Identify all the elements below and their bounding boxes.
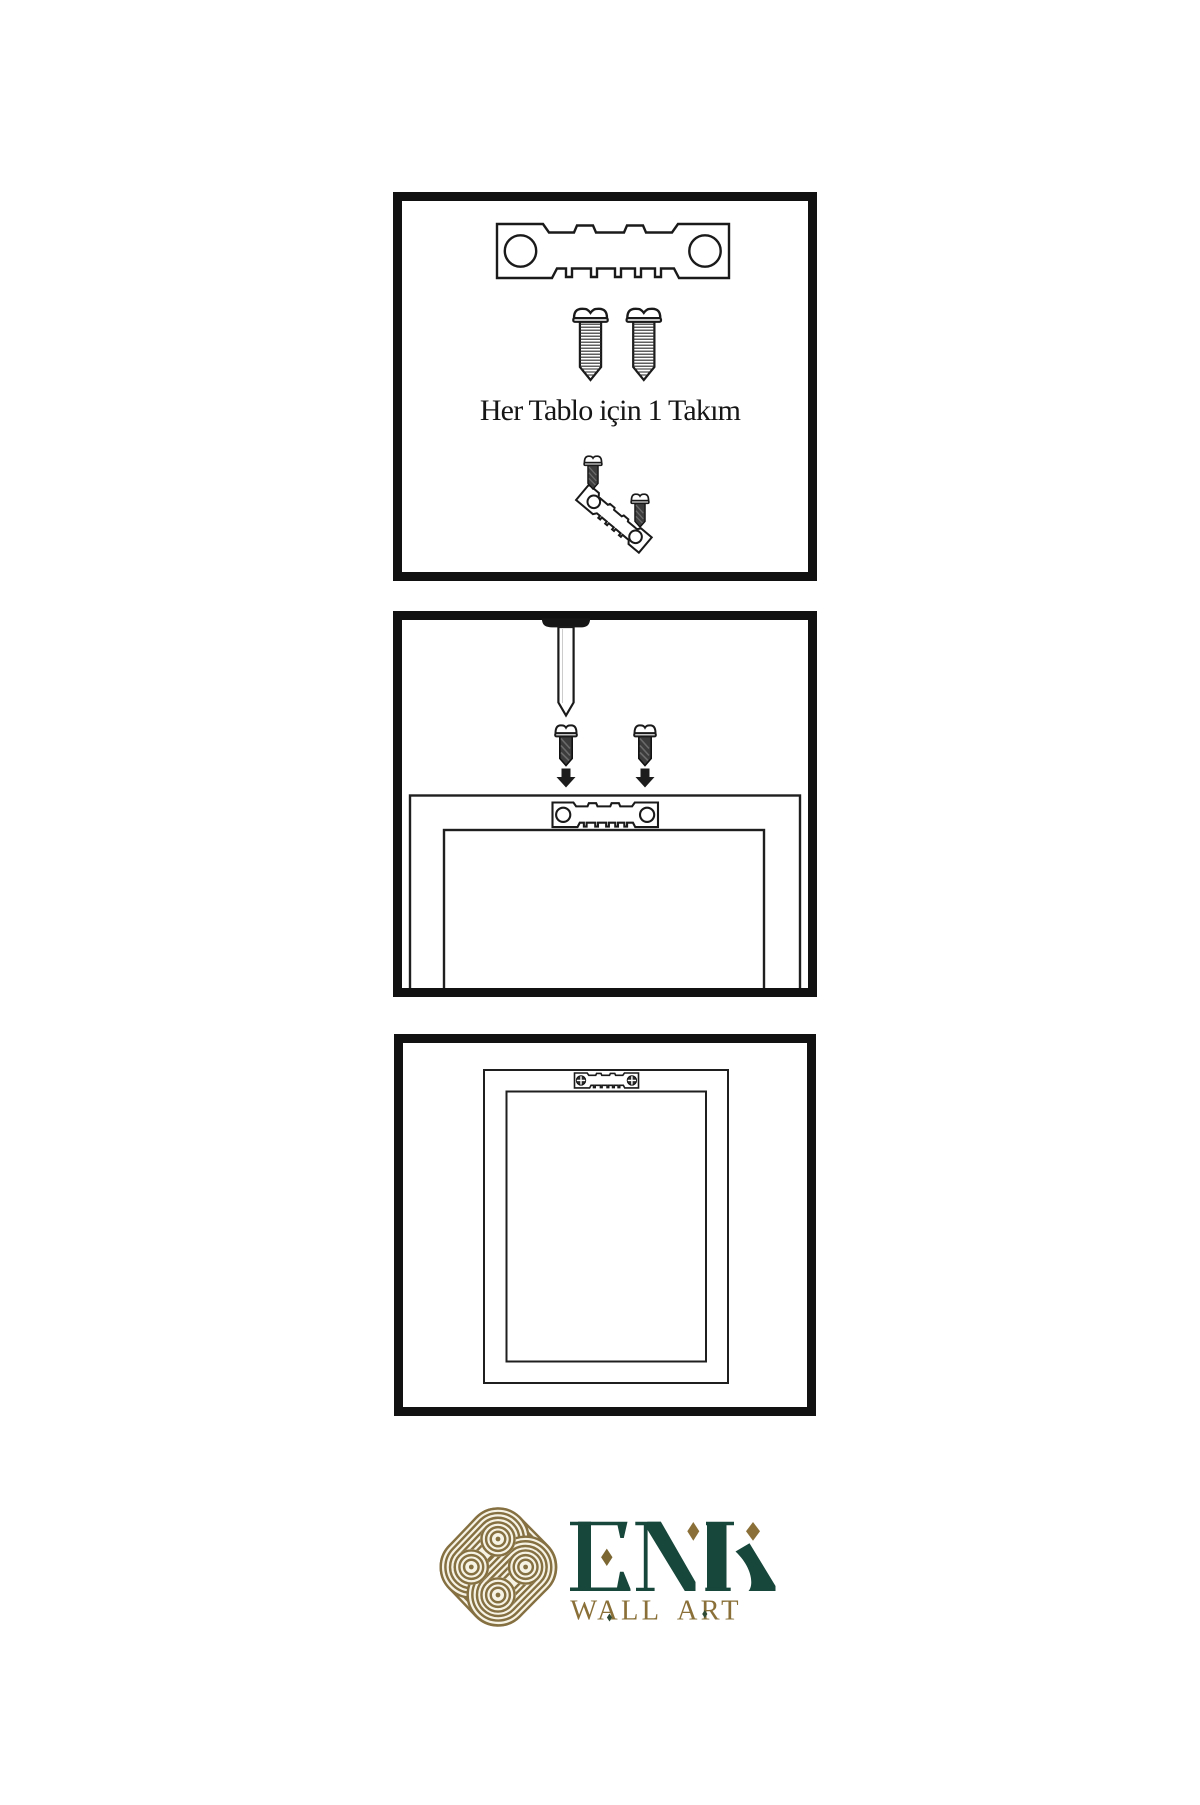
svg-text:Her Tablo için 1 Takım: Her Tablo için 1 Takım — [480, 394, 741, 427]
svg-text:WALL ART: WALL ART — [570, 1596, 742, 1627]
